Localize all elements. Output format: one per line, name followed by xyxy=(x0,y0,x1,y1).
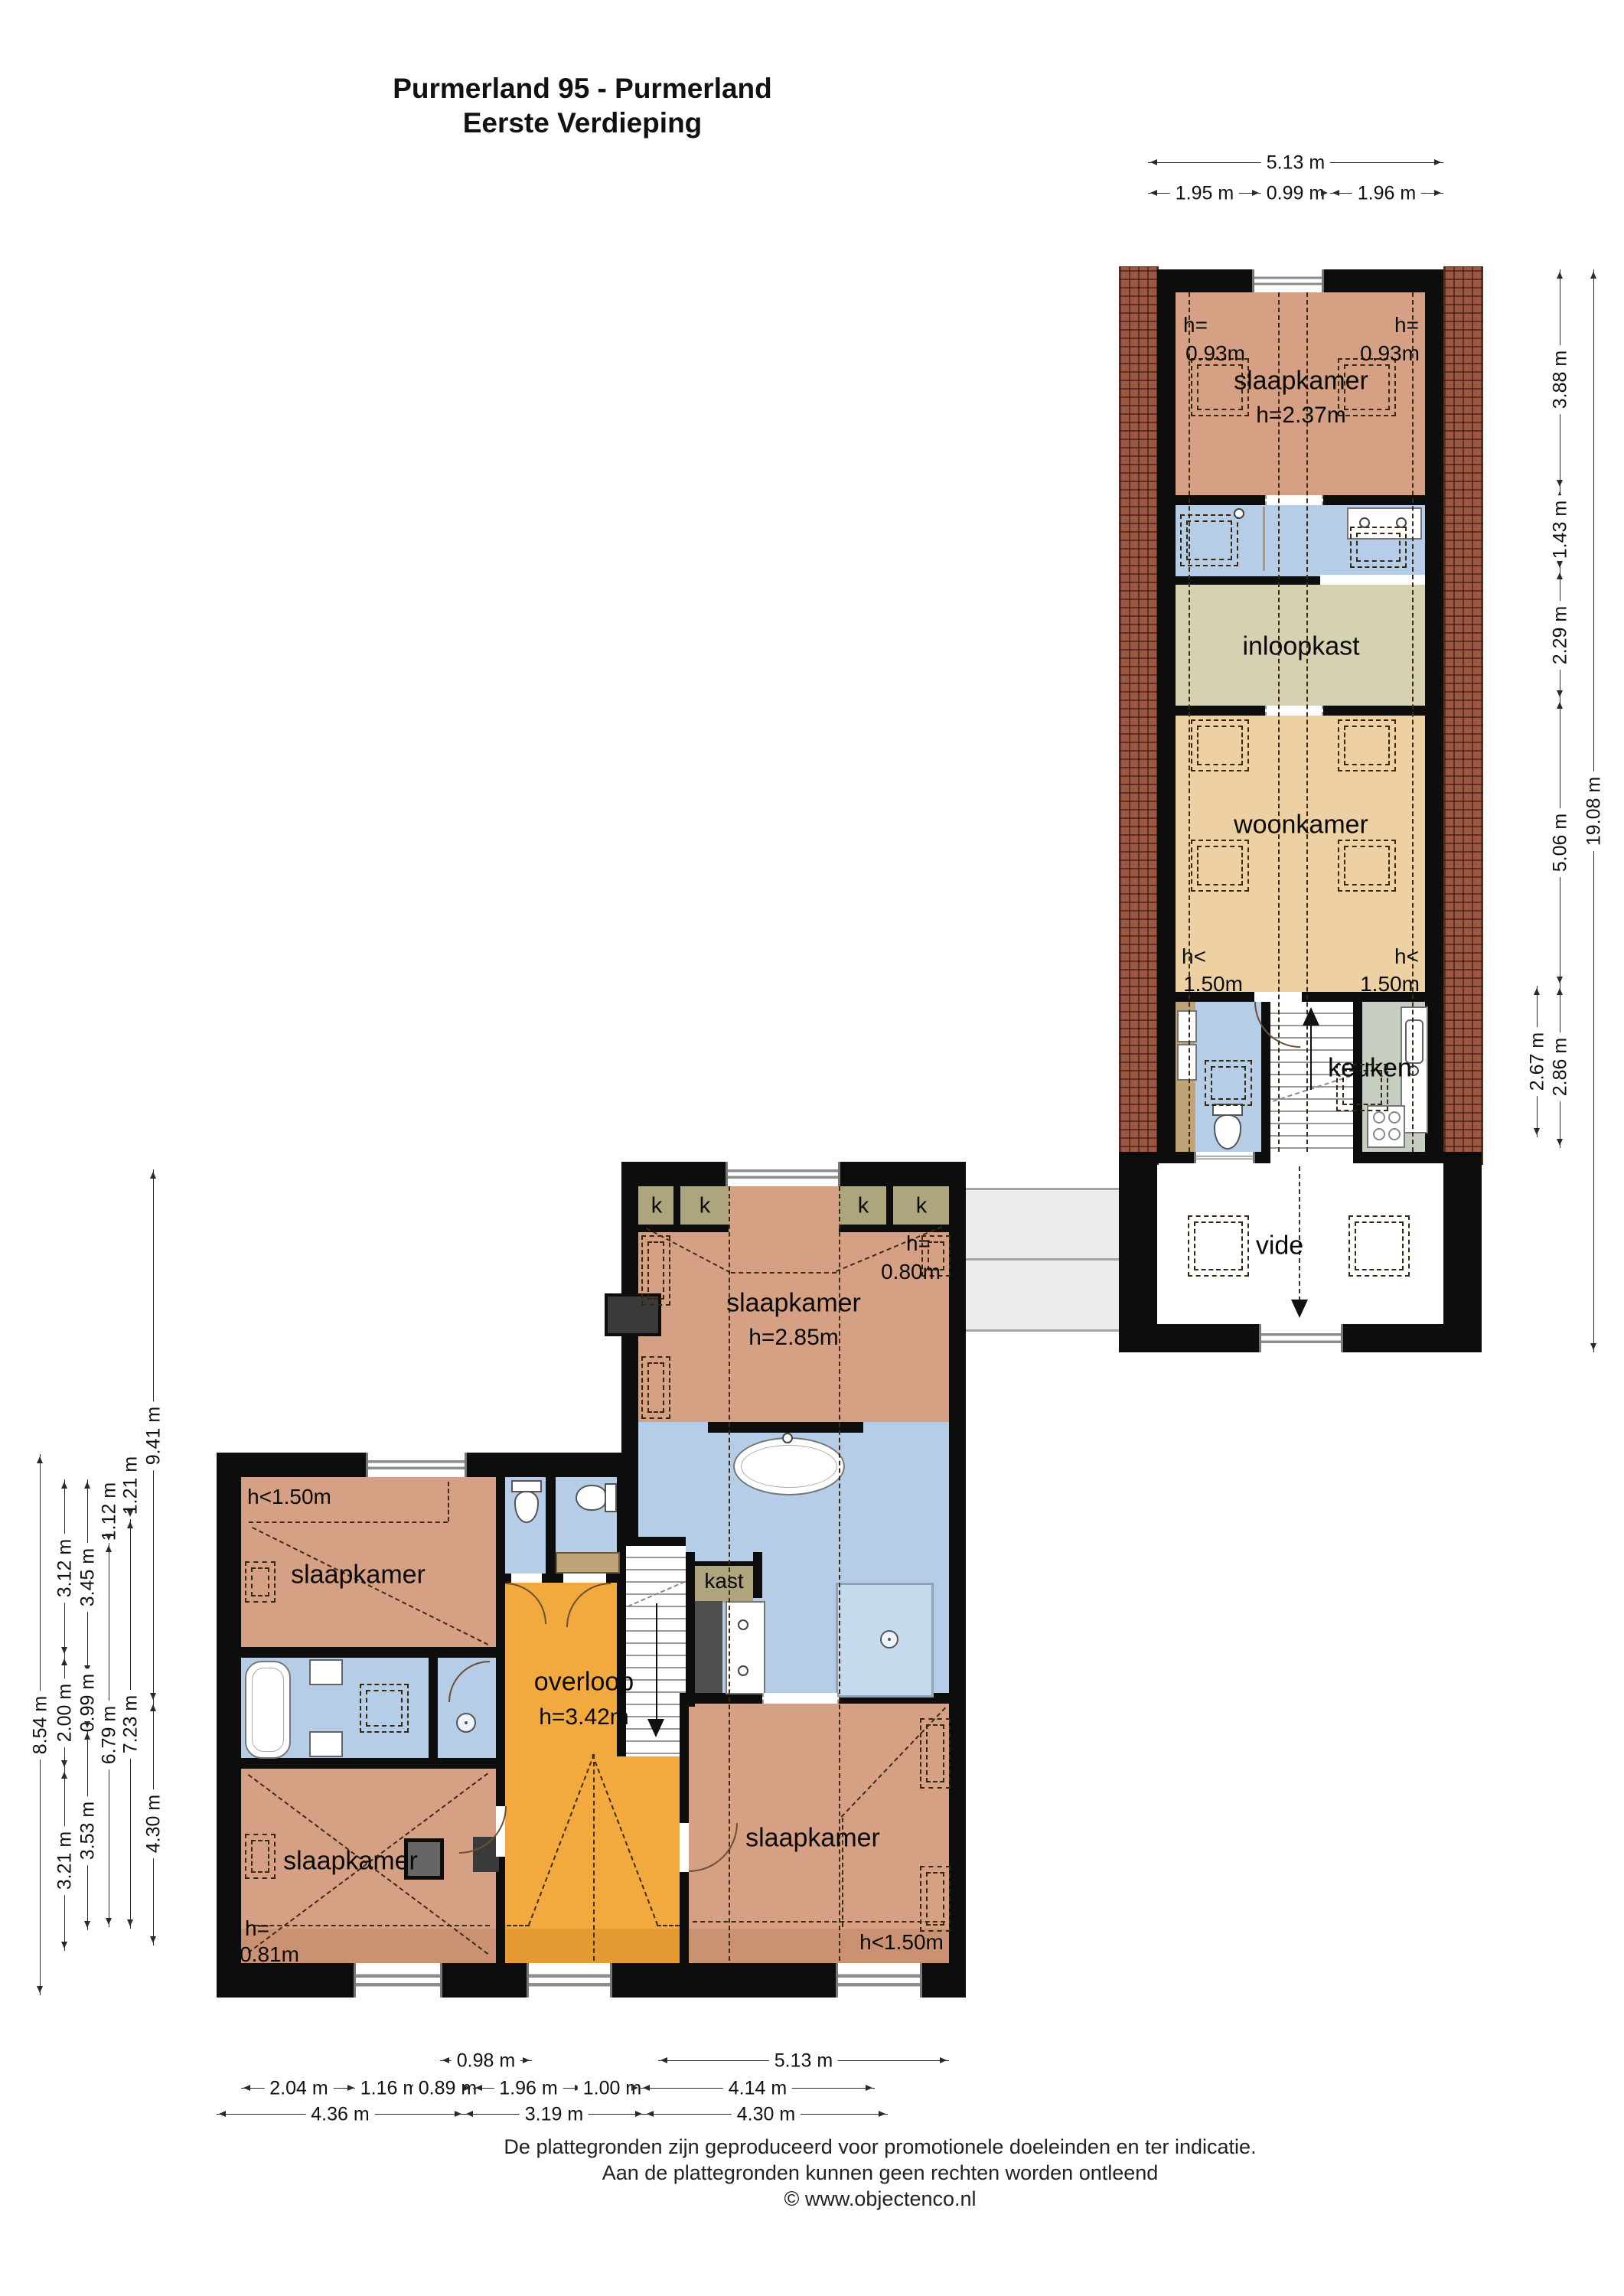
dim-label: 3.19 m xyxy=(520,2103,589,2127)
dim-label: 8.54 m xyxy=(29,1690,53,1759)
dimension-line: 1.96 m xyxy=(473,2088,584,2089)
dimension-line: 2.00 m xyxy=(64,1656,65,1769)
dimension-line: 2.04 m xyxy=(241,2088,357,2089)
faucet-icon xyxy=(782,1433,793,1443)
room-label: kast xyxy=(704,1569,743,1593)
dim-label: 4.30 m xyxy=(142,1789,166,1858)
sink-icon xyxy=(309,1659,343,1685)
bathtub-icon xyxy=(245,1661,291,1759)
wall xyxy=(686,1552,695,1707)
faucet-icon xyxy=(738,1665,748,1676)
shelf xyxy=(556,1552,620,1574)
corner-height-label: 0.93m xyxy=(1360,341,1420,366)
dimension-line: 4.36 m xyxy=(217,2114,464,2115)
appliance xyxy=(1177,1010,1197,1042)
vanity-counter xyxy=(726,1601,765,1694)
corridor-lower xyxy=(961,1258,1128,1332)
roof-dashed-line xyxy=(246,1925,490,1926)
shower-drain-icon xyxy=(880,1630,898,1649)
room-label: inloopkast xyxy=(1242,632,1359,662)
wall xyxy=(217,1477,241,1998)
wall-recess-dashed xyxy=(641,1235,670,1306)
dim-label: 5.13 m xyxy=(769,2050,838,2073)
corner-height-label: 0.93m xyxy=(1185,341,1245,366)
corner-height-label: h= xyxy=(245,1916,269,1941)
dimension-line: 0.99 m xyxy=(87,1675,88,1730)
room-height-label: h=3.42m xyxy=(539,1704,629,1730)
room-label: vide xyxy=(1256,1231,1303,1261)
cabinet-panel xyxy=(695,1601,722,1693)
footer-line1: De plattegronden zijn geproduceerd voor … xyxy=(504,2135,1256,2159)
door-opening xyxy=(762,1693,839,1704)
window xyxy=(1259,1324,1343,1352)
corner-height-label: 0.80m xyxy=(881,1260,941,1284)
page-title-line2: Eerste Verdieping xyxy=(0,107,1394,139)
stairs-arrow-head xyxy=(647,1719,664,1737)
door-opening xyxy=(680,1823,689,1872)
corner-height-label: 1.50m xyxy=(1360,972,1420,996)
dimension-line: 3.88 m xyxy=(1560,269,1560,489)
dim-label: 4.36 m xyxy=(305,2103,374,2127)
corner-height-label: h<1.50m xyxy=(247,1485,331,1509)
closet-label: k xyxy=(858,1194,869,1219)
dim-label: 5.06 m xyxy=(1549,808,1573,877)
skylight-dashed xyxy=(1205,1060,1252,1106)
room-label: slaapkamer xyxy=(726,1289,861,1319)
hob-icon xyxy=(1367,1105,1405,1148)
roof-dashed-line xyxy=(731,1272,836,1274)
faucet-icon xyxy=(1396,517,1407,528)
window xyxy=(366,1453,467,1477)
dim-label: 1.12 m xyxy=(98,1476,122,1545)
brick-roof-right xyxy=(1443,266,1483,1165)
skylight-dashed xyxy=(1191,840,1249,892)
door-opening xyxy=(1265,495,1323,505)
dimension-line: 4.14 m xyxy=(641,2088,875,2089)
bathtub-inner xyxy=(252,1668,284,1752)
roof-dashed-line xyxy=(593,1754,595,1961)
dimension-line: 4.30 m xyxy=(644,2114,888,2115)
dim-label: 2.00 m xyxy=(54,1678,77,1747)
dimension-line: 5.13 m xyxy=(1148,162,1443,163)
room-label: overloop xyxy=(534,1668,634,1698)
corner-height-label: h= xyxy=(1183,313,1208,338)
room-height-label: h=2.85m xyxy=(748,1325,839,1351)
brick-roof-left xyxy=(1119,266,1159,1165)
door-opening xyxy=(563,1574,606,1583)
room-label: woonkamer xyxy=(1234,810,1368,840)
corner-height-label: h= xyxy=(1394,313,1419,338)
vide-arrow-head xyxy=(1291,1300,1308,1318)
glass-divider xyxy=(1263,507,1265,571)
dimension-line: 3.12 m xyxy=(64,1479,65,1656)
dim-label: 1.95 m xyxy=(1170,182,1239,206)
window xyxy=(354,1963,442,1998)
dim-label: 4.30 m xyxy=(732,2103,801,2127)
skylight-dashed xyxy=(1180,514,1238,566)
wall xyxy=(1119,1152,1157,1352)
wall-recess-dashed xyxy=(245,1834,276,1879)
dim-label: 0.98 m xyxy=(452,2050,520,2073)
skylight-dashed xyxy=(1338,840,1396,892)
toilet-icon xyxy=(605,1483,617,1512)
room-label: slaapkamer xyxy=(1234,367,1368,396)
window xyxy=(726,1162,840,1186)
dim-label: 3.88 m xyxy=(1549,344,1573,413)
low-ceiling-shade xyxy=(505,1929,680,1963)
window xyxy=(836,1963,922,1998)
dim-label: 2.04 m xyxy=(264,2077,333,2101)
shower-head-icon xyxy=(456,1713,476,1733)
dim-label: 0.99 m xyxy=(1261,182,1330,206)
hob-burner xyxy=(1373,1128,1385,1140)
sink-icon xyxy=(309,1731,343,1757)
dimension-line: 19.08 m xyxy=(1593,269,1594,1352)
corner-height-label: h<1.50m xyxy=(859,1930,944,1955)
corner-height-label: 0.81m xyxy=(240,1942,299,1967)
dimension-line: 3.53 m xyxy=(87,1730,88,1930)
dimension-line: 7.23 m xyxy=(130,1519,131,1929)
corner-height-label: h< xyxy=(1394,944,1419,969)
dim-label: 1.00 m xyxy=(578,2077,647,2101)
dimension-line: 3.21 m xyxy=(64,1769,65,1951)
dimension-line: 0.98 m xyxy=(440,2060,532,2061)
dim-label: 2.29 m xyxy=(1549,600,1573,669)
roof-dashed-line xyxy=(249,1521,448,1523)
skylight-dashed xyxy=(1188,1215,1249,1277)
shower-faucet-icon xyxy=(1234,508,1244,519)
stairs-arrow xyxy=(656,1603,657,1722)
dim-label: 3.12 m xyxy=(54,1533,77,1602)
wall xyxy=(617,1477,638,1546)
window xyxy=(1252,269,1324,292)
floorplan-canvas: Purmerland 95 - Purmerland Eerste Verdie… xyxy=(0,0,1624,2296)
dim-label: 3.53 m xyxy=(77,1795,100,1864)
room-label: slaapkamer xyxy=(283,1847,418,1877)
appliance xyxy=(1177,1044,1197,1081)
skylight-dashed xyxy=(360,1684,409,1733)
roof-dashed-line xyxy=(507,1925,530,1926)
door-opening xyxy=(1265,706,1323,716)
dimension-line: 5.06 m xyxy=(1560,700,1560,986)
dimension-line: 4.30 m xyxy=(153,1702,154,1945)
corridor-upper xyxy=(961,1188,1128,1263)
dim-label: 2.67 m xyxy=(1526,1027,1550,1096)
dim-label: 3.21 m xyxy=(54,1825,77,1894)
dimension-line: 2.29 m xyxy=(1560,570,1560,700)
dimension-line: 5.13 m xyxy=(658,2060,949,2061)
wall-recess-dashed xyxy=(245,1561,276,1603)
wall-opening xyxy=(1320,575,1425,585)
roof-dashed-line xyxy=(1412,292,1414,1152)
dim-label: 7.23 m xyxy=(119,1689,143,1758)
dimension-line: 2.86 m xyxy=(1560,986,1560,1148)
dimension-line: 6.79 m xyxy=(109,1543,109,1927)
wall xyxy=(1157,292,1176,1152)
corner-height-label: h= xyxy=(906,1231,931,1256)
closet-label: k xyxy=(651,1194,663,1219)
dim-label: 6.79 m xyxy=(98,1701,122,1769)
dimension-line: 1.12 m xyxy=(109,1479,109,1543)
skylight-dashed xyxy=(1348,1215,1410,1277)
stairs-arrow xyxy=(1310,1026,1312,1090)
dim-label: 1.96 m xyxy=(494,2077,563,2101)
dim-label: 1.21 m xyxy=(119,1450,143,1519)
dim-label: 1.96 m xyxy=(1352,182,1421,206)
closet-label: k xyxy=(699,1194,711,1219)
room-label: slaapkamer xyxy=(745,1824,880,1854)
footer-line3: © www.objectenco.nl xyxy=(784,2187,976,2211)
skylight-dashed xyxy=(1338,719,1396,771)
wall xyxy=(241,1647,496,1658)
skylight-dashed xyxy=(1350,527,1407,568)
roof-dashed-line xyxy=(693,1921,945,1923)
stairs-arrow-head xyxy=(1303,1007,1319,1026)
dimension-line: 2.67 m xyxy=(1537,986,1538,1137)
wall xyxy=(949,1162,966,1998)
dimension-line: 1.96 m xyxy=(1330,193,1443,194)
dimension-line: 0.89 m xyxy=(422,2088,473,2089)
roof-dashed-line xyxy=(657,1925,680,1926)
dim-label: 0.99 m xyxy=(77,1668,100,1737)
roof-dashed-line xyxy=(1189,292,1190,1152)
dimension-line: 3.45 m xyxy=(87,1479,88,1675)
dim-label: 3.45 m xyxy=(77,1542,100,1611)
page-title-line1: Purmerland 95 - Purmerland xyxy=(0,73,1394,105)
corner-height-label: 1.50m xyxy=(1183,972,1243,996)
dimension-line: 8.54 m xyxy=(40,1454,41,1995)
door-opening xyxy=(511,1574,542,1583)
dimension-line: 3.19 m xyxy=(464,2114,644,2115)
wall-recess-dashed xyxy=(641,1356,670,1419)
dim-label: 9.41 m xyxy=(142,1401,166,1470)
window xyxy=(527,1963,612,1998)
wall xyxy=(1443,1152,1482,1352)
wall xyxy=(546,1477,556,1574)
footer-line2: Aan de plattegronden kunnen geen rechten… xyxy=(602,2161,1159,2185)
dimension-line: 0.99 m xyxy=(1261,193,1330,194)
toilet-icon xyxy=(576,1485,606,1511)
faucet-icon xyxy=(1359,517,1370,528)
hob-burner xyxy=(1388,1128,1401,1140)
dim-label: 19.08 m xyxy=(1583,771,1606,850)
room-label: keuken xyxy=(1328,1054,1412,1084)
wall xyxy=(429,1658,438,1758)
dimension-line: 1.43 m xyxy=(1560,489,1560,570)
dimension-line: 1.95 m xyxy=(1148,193,1261,194)
wall xyxy=(241,1758,496,1769)
dim-label: 4.14 m xyxy=(723,2077,792,2101)
stairwell-opening xyxy=(1270,1152,1353,1163)
room-nw-slaapkamer xyxy=(729,1186,839,1232)
dimension-line: 1.21 m xyxy=(130,1451,131,1519)
corner-height-label: h< xyxy=(1182,944,1206,969)
wall xyxy=(753,1552,762,1598)
wall xyxy=(496,1477,505,1963)
skylight-dashed xyxy=(1191,719,1249,771)
room-height-label: h=2.37m xyxy=(1256,403,1346,429)
room-label: slaapkamer xyxy=(291,1561,426,1590)
bathtub-icon xyxy=(733,1437,845,1495)
closet-cells-right xyxy=(839,1186,949,1225)
dim-label: 1.43 m xyxy=(1549,495,1573,564)
wall xyxy=(617,1537,686,1546)
dimension-line: 9.41 m xyxy=(153,1169,154,1702)
dim-label: 5.13 m xyxy=(1261,152,1330,175)
hob-burner xyxy=(1388,1111,1401,1124)
bathtub-inner xyxy=(741,1445,837,1488)
roof-dashed-line xyxy=(448,1482,449,1521)
hob-burner xyxy=(1373,1111,1385,1124)
closet-label: k xyxy=(916,1194,928,1219)
dim-label: 2.86 m xyxy=(1549,1032,1573,1101)
dimension-line: 1.00 m xyxy=(584,2088,641,2089)
window xyxy=(1194,1152,1255,1163)
faucet-icon xyxy=(738,1619,748,1630)
